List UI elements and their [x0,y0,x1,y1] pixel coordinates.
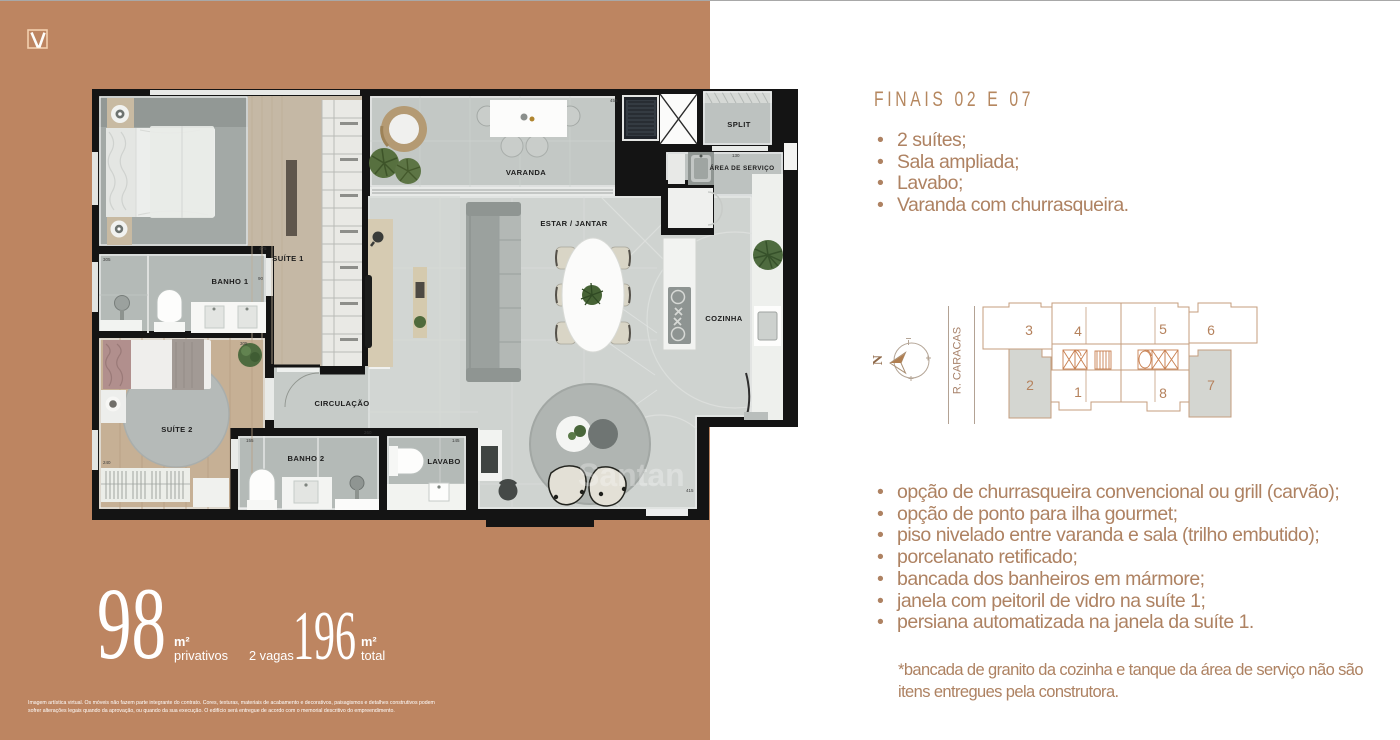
svg-text:N: N [871,355,886,365]
svg-text:SUÍTE 1: SUÍTE 1 [272,254,304,263]
svg-text:5: 5 [1159,321,1167,337]
svg-text:305: 305 [240,341,248,346]
svg-text:305: 305 [103,257,111,262]
svg-text:CIRCULAÇÃO: CIRCULAÇÃO [314,399,369,408]
svg-text:SUÍTE 2: SUÍTE 2 [161,425,193,434]
svg-text:3: 3 [1025,322,1033,338]
svg-text:Santan: Santan [578,457,685,493]
svg-text:4: 4 [1074,323,1082,339]
svg-text:475: 475 [259,246,267,251]
svg-text:145: 145 [452,438,460,443]
svg-text:260: 260 [364,430,372,435]
svg-text:COZINHA: COZINHA [705,314,743,323]
svg-text:BANHO 1: BANHO 1 [212,277,249,286]
svg-text:ESTAR / JANTAR: ESTAR / JANTAR [540,219,607,228]
svg-text:240: 240 [103,460,111,465]
svg-text:1: 1 [1074,384,1082,400]
svg-text:BANHO 2: BANHO 2 [288,454,325,463]
svg-text:6: 6 [1207,322,1215,338]
svg-text:8: 8 [1159,385,1167,401]
svg-text:VARANDA: VARANDA [506,168,546,177]
svg-text:455: 455 [610,98,618,103]
svg-text:R. CARACAS: R. CARACAS [952,327,964,394]
svg-text:130: 130 [732,153,740,158]
svg-text:7: 7 [1207,377,1215,393]
svg-text:155: 155 [246,438,254,443]
svg-text:ÁREA DE SERVIÇO: ÁREA DE SERVIÇO [710,163,775,172]
svg-text:415: 415 [686,488,694,493]
svg-text:2: 2 [1026,377,1034,393]
svg-text:LAVABO: LAVABO [427,457,460,466]
svg-text:90: 90 [258,276,264,281]
svg-text:SPLIT: SPLIT [727,120,751,129]
